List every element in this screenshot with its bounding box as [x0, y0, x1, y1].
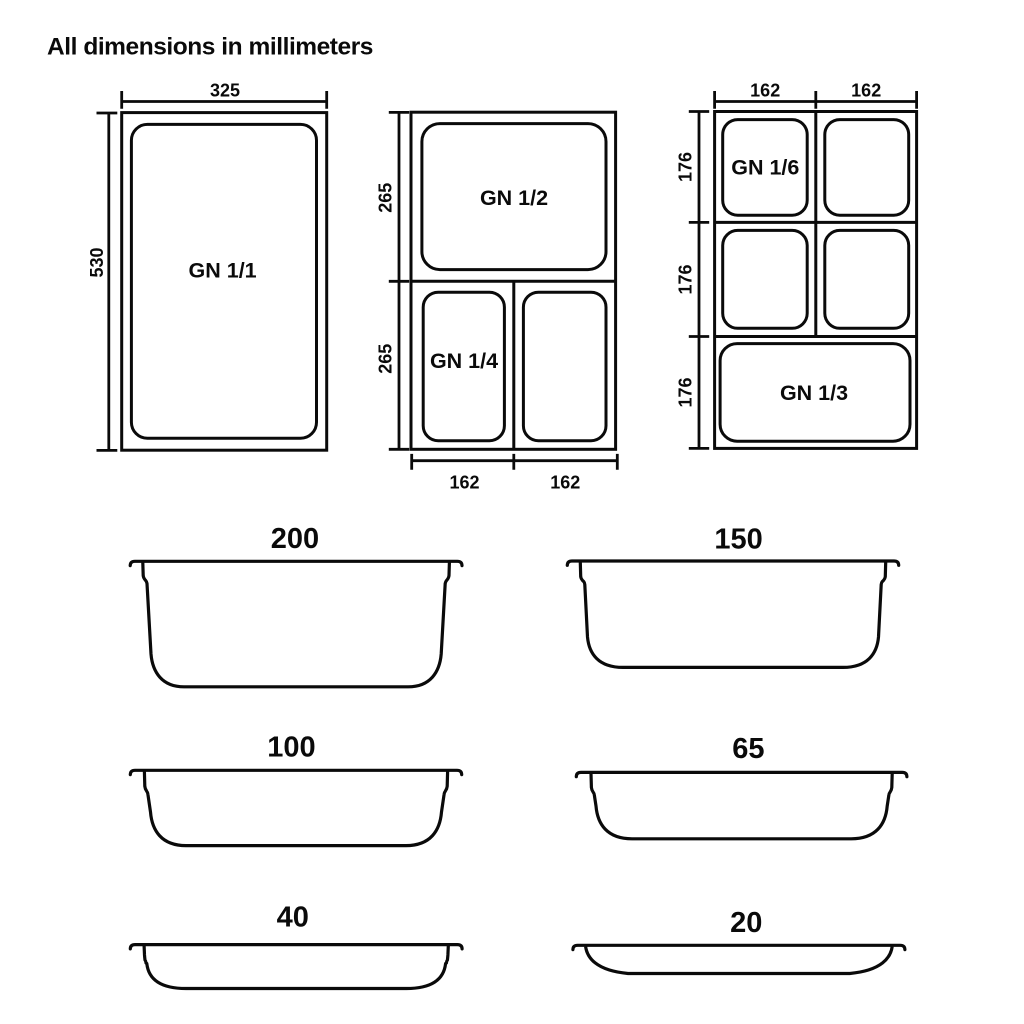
svg-text:162: 162: [550, 473, 580, 493]
svg-text:162: 162: [851, 80, 881, 100]
svg-text:65: 65: [732, 733, 764, 765]
svg-text:20: 20: [730, 907, 762, 939]
svg-text:40: 40: [277, 902, 309, 934]
svg-text:176: 176: [675, 377, 695, 407]
svg-text:GN 1/3: GN 1/3: [780, 381, 848, 405]
svg-text:100: 100: [267, 732, 315, 764]
svg-text:200: 200: [271, 523, 319, 555]
svg-text:325: 325: [210, 80, 240, 100]
svg-text:162: 162: [750, 80, 780, 100]
svg-text:162: 162: [449, 473, 479, 493]
svg-text:530: 530: [87, 247, 107, 277]
svg-text:GN 1/2: GN 1/2: [480, 186, 548, 210]
svg-text:GN 1/1: GN 1/1: [189, 259, 257, 283]
svg-text:176: 176: [675, 152, 695, 182]
svg-text:All dimensions in millimeters: All dimensions in millimeters: [47, 33, 373, 60]
svg-text:GN 1/6: GN 1/6: [731, 156, 799, 180]
svg-text:150: 150: [714, 524, 762, 556]
svg-text:265: 265: [376, 183, 396, 213]
svg-text:265: 265: [376, 344, 396, 374]
svg-text:GN 1/4: GN 1/4: [430, 349, 498, 373]
svg-text:176: 176: [675, 264, 695, 294]
